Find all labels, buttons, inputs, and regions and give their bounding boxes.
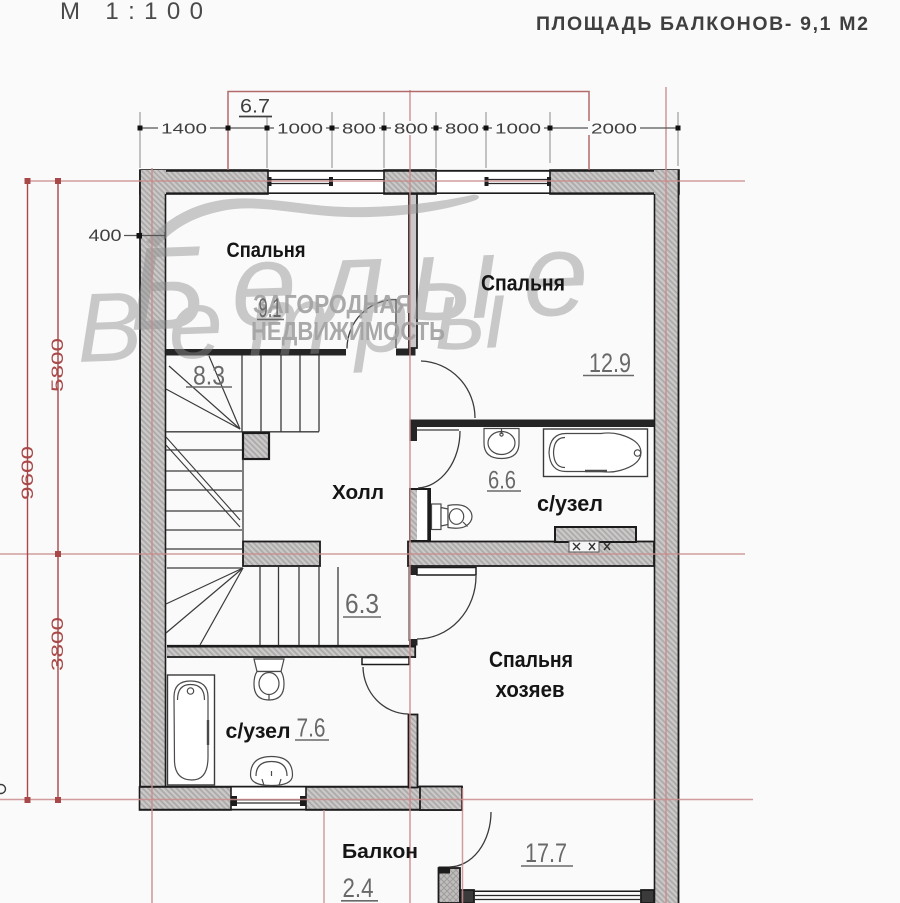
- svg-text:1000: 1000: [277, 121, 323, 138]
- svg-text:8.3: 8.3: [193, 361, 225, 391]
- svg-text:Холл: Холл: [332, 482, 384, 504]
- svg-text:с/узел: с/узел: [226, 720, 291, 743]
- svg-text:1000: 1000: [495, 121, 541, 138]
- svg-text:800: 800: [394, 121, 428, 138]
- svg-text:800: 800: [445, 121, 479, 138]
- svg-text:9.1: 9.1: [259, 293, 282, 323]
- svg-text:400: 400: [89, 226, 122, 245]
- svg-text:5800: 5800: [48, 338, 67, 392]
- svg-text:9600: 9600: [18, 446, 37, 500]
- svg-text:Балкон: Балкон: [342, 841, 418, 863]
- svg-text:1400: 1400: [161, 121, 207, 138]
- svg-text:800: 800: [342, 121, 376, 138]
- svg-text:7.6: 7.6: [297, 713, 326, 743]
- svg-text:Спальня: Спальня: [227, 239, 306, 262]
- svg-text:2.4: 2.4: [343, 873, 374, 903]
- svg-text:с/узел: с/узел: [537, 491, 603, 516]
- svg-text:2000: 2000: [591, 121, 637, 138]
- svg-text:3800: 3800: [48, 617, 67, 671]
- svg-text:6.3: 6.3: [345, 588, 379, 619]
- svg-text:6.7: 6.7: [240, 97, 270, 118]
- svg-text:17.7: 17.7: [525, 838, 567, 868]
- svg-text:Спальня: Спальня: [489, 647, 573, 672]
- svg-text:Спальня: Спальня: [481, 271, 565, 296]
- svg-text:хозяев: хозяев: [496, 677, 565, 702]
- svg-text:12.9: 12.9: [589, 348, 631, 378]
